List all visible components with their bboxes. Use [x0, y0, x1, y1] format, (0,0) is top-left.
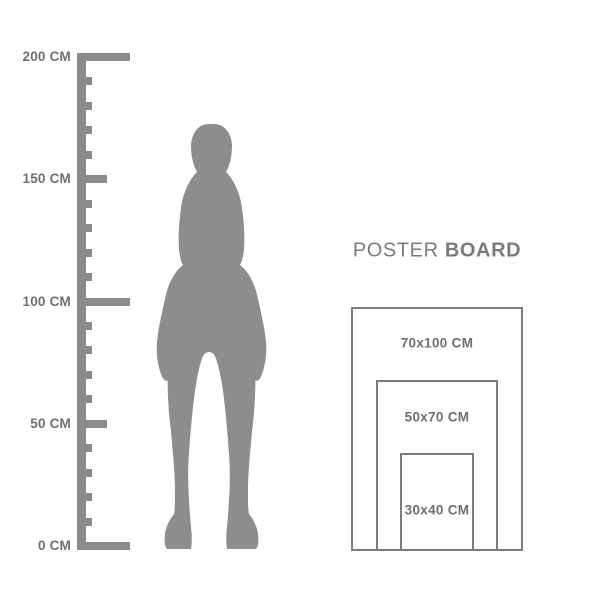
size-guide-diagram: 200 CM150 CM100 CM50 CM0 CM POSTER BOARD… [0, 0, 600, 600]
poster-size-label-70x100: 70x100 CM [401, 336, 474, 351]
poster-size-label-30x40: 30x40 CM [405, 502, 470, 517]
poster-title-bold: BOARD [445, 240, 521, 262]
poster-board-title: POSTER BOARD [353, 240, 521, 263]
poster-size-label-50x70: 50x70 CM [405, 409, 470, 424]
poster-board-diagram: POSTER BOARD 70x100 CM50x70 CM30x40 CM [0, 0, 600, 600]
poster-title-regular: POSTER [353, 240, 439, 262]
